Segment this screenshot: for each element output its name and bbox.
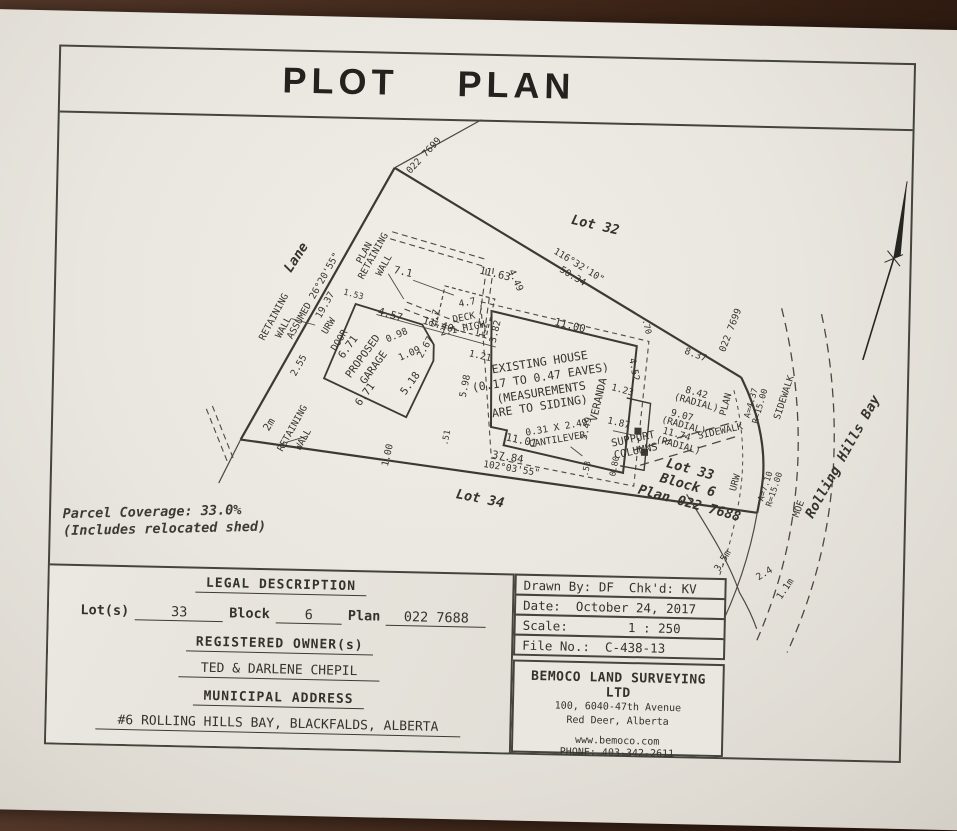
dim-5-18: 5.18 — [398, 370, 423, 397]
dim-1-23: 1.23 — [610, 382, 635, 399]
dim-1-00: 1.00 — [380, 443, 396, 468]
dim-5-98: 5.98 — [458, 373, 473, 398]
plan-border-frame: PLOT PLAN — [44, 44, 916, 763]
veranda-label: VERANDA — [588, 376, 610, 422]
dim-7-1: 7.1 — [392, 264, 413, 280]
surveyor-box: BEMOCO LAND SURVEYING LTD 100, 6040-47th… — [511, 660, 725, 758]
block-value: 6 — [276, 606, 342, 624]
plan-label: Plan — [348, 608, 381, 625]
dim-0-98: 0.98 — [384, 326, 410, 345]
dim-1-21: 1.21 — [468, 348, 493, 364]
page-title: PLOT PLAN — [282, 59, 576, 107]
lot-34-label: Lot 34 — [455, 486, 506, 511]
parcel-coverage-note: Parcel Coverage: 33.0% (Includes relocat… — [63, 502, 267, 540]
file-no-row: File No.: C-438-13 — [513, 634, 725, 661]
dim-2-55: 2.55 — [289, 353, 310, 378]
dim-0-51: .51 — [440, 429, 453, 446]
dim-4-57: 4.57 — [376, 306, 404, 325]
dim-2-4: 2.4 — [754, 565, 775, 584]
dim-11-00: 11.00 — [553, 316, 587, 335]
plan-arc-label: PLAN — [718, 392, 735, 417]
dim-2m: 2m — [261, 416, 278, 433]
dim-3-82: 3.82 — [488, 319, 504, 344]
surveyor-name: BEMOCO LAND SURVEYING LTD — [514, 669, 723, 704]
dim-6-71-sw: 6.71 — [353, 381, 378, 408]
urw-arc-label: URW — [728, 473, 743, 493]
street-name-rolling-hills-bay: Rolling Hills Bay — [802, 392, 884, 521]
sidewalk-inner-label: SIDEWALK — [697, 421, 744, 442]
dim-0-70: .70 — [639, 318, 652, 335]
sidewalk-outer-label: SIDEWALK — [772, 374, 797, 421]
municipal-address-heading: MUNICIPAL ADDRESS — [193, 689, 363, 710]
municipal-address-value: #6 ROLLING HILLS BAY, BLACKFALDS, ALBERT… — [95, 712, 460, 737]
lot-value: 33 — [135, 603, 223, 622]
dim-4-7: 4.7 — [458, 296, 477, 310]
photo-of-plot-plan: { "title": "PLOT PLAN", "note": { "line1… — [0, 0, 957, 768]
block-label: Block — [229, 605, 270, 622]
plan-number-top: 022 7699 — [404, 135, 444, 176]
dim-1-1m: 1.1m — [774, 576, 796, 601]
north-arrow-icon — [860, 181, 913, 363]
plan-number-right: 022 7699 — [717, 307, 744, 354]
dim-4-52: 4.52 — [626, 357, 641, 382]
dim-8-37: 8.37 — [683, 346, 708, 365]
dim-0-80: 0.80 — [608, 455, 622, 477]
lane-label: Lane — [281, 240, 312, 276]
dim-1-53: 1.53 — [342, 287, 364, 302]
dim-1-87: 1.87 — [606, 415, 631, 431]
lot-label: Lot(s) — [80, 602, 129, 619]
plan-value: 022 7688 — [386, 609, 486, 628]
paper-sheet: PLOT PLAN — [0, 9, 957, 831]
drawing-info-box: Drawn By: DF Chk'd: KV Date: October 24,… — [511, 574, 727, 758]
registered-owner-value: TED & DARLENE CHEPIL — [179, 660, 380, 681]
legal-description-box: LEGAL DESCRIPTION Lot(s) 33 Block 6 Plan… — [46, 563, 515, 752]
registered-owner-heading: REGISTERED OWNER(s) — [186, 634, 374, 655]
legal-description-heading: LEGAL DESCRIPTION — [196, 576, 366, 597]
lot-32-label: Lot 32 — [570, 212, 621, 239]
dim-0-53: .53 — [581, 460, 594, 477]
lot-block-plan-row: Lot(s) 33 Block 6 Plan 022 7688 — [74, 602, 486, 628]
dim-11-63: 11.63 — [478, 265, 512, 284]
